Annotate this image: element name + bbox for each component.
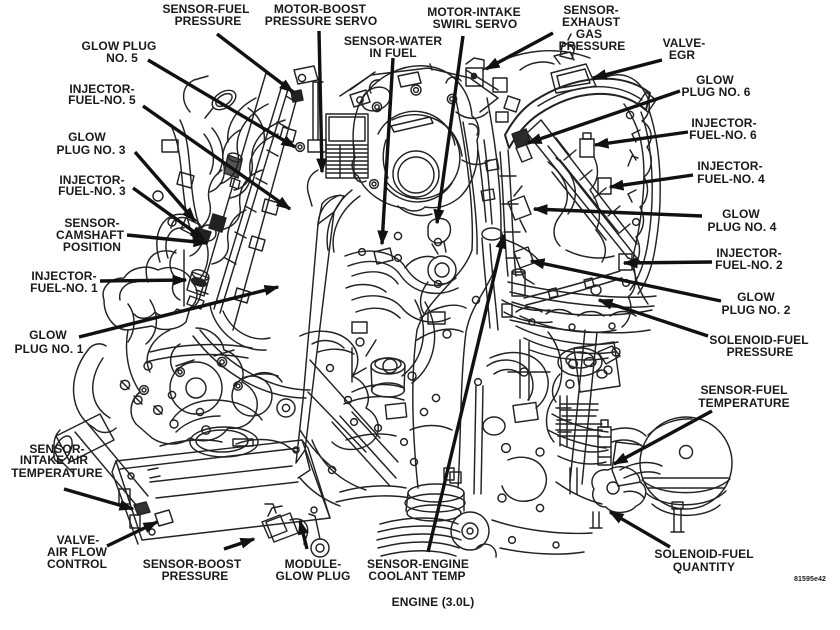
svg-text:PLUG NO. 3: PLUG NO. 3 bbox=[56, 143, 125, 157]
svg-text:FUEL-NO. 6: FUEL-NO. 6 bbox=[689, 128, 757, 142]
svg-text:FUEL-NO. 2: FUEL-NO. 2 bbox=[715, 258, 783, 272]
svg-text:PRESSURE: PRESSURE bbox=[175, 14, 242, 28]
svg-text:CONTROL: CONTROL bbox=[47, 557, 107, 571]
svg-text:COOLANT TEMP: COOLANT TEMP bbox=[368, 569, 465, 583]
svg-text:QUANTITY: QUANTITY bbox=[673, 560, 735, 574]
svg-text:GLOW: GLOW bbox=[722, 207, 760, 221]
svg-text:PRESSURE: PRESSURE bbox=[727, 345, 794, 359]
svg-text:ENGINE (3.0L): ENGINE (3.0L) bbox=[392, 595, 475, 609]
svg-text:FUEL-NO. 3: FUEL-NO. 3 bbox=[58, 184, 126, 198]
svg-text:SENSOR-FUEL: SENSOR-FUEL bbox=[700, 383, 787, 397]
svg-text:PRESSURE SERVO: PRESSURE SERVO bbox=[265, 14, 378, 28]
svg-text:PLUG NO. 2: PLUG NO. 2 bbox=[721, 303, 790, 317]
svg-text:PRESSURE: PRESSURE bbox=[162, 569, 229, 583]
svg-text:GLOW: GLOW bbox=[68, 130, 106, 144]
svg-text:81595e42: 81595e42 bbox=[794, 576, 826, 583]
svg-text:GLOW: GLOW bbox=[29, 328, 67, 342]
svg-text:FUEL-NO. 5: FUEL-NO. 5 bbox=[68, 93, 136, 107]
svg-text:TEMPERATURE: TEMPERATURE bbox=[11, 466, 103, 480]
svg-text:PLUG NO. 4: PLUG NO. 4 bbox=[707, 220, 776, 234]
svg-text:EGR: EGR bbox=[669, 48, 696, 62]
svg-text:INTAKE AIR: INTAKE AIR bbox=[20, 453, 89, 467]
svg-text:GLOW PLUG: GLOW PLUG bbox=[276, 569, 351, 583]
svg-text:FUEL-NO. 1: FUEL-NO. 1 bbox=[30, 281, 98, 295]
svg-text:IN FUEL: IN FUEL bbox=[369, 46, 416, 60]
svg-text:TEMPERATURE: TEMPERATURE bbox=[698, 396, 790, 410]
svg-text:PLUG NO. 1: PLUG NO. 1 bbox=[14, 342, 83, 356]
svg-text:SOLENOID-FUEL: SOLENOID-FUEL bbox=[654, 547, 753, 561]
svg-text:NO. 5: NO. 5 bbox=[106, 51, 138, 65]
svg-text:INJECTOR-: INJECTOR- bbox=[697, 159, 762, 173]
svg-text:FUEL-NO. 4: FUEL-NO. 4 bbox=[697, 172, 765, 186]
svg-text:PRESSURE: PRESSURE bbox=[559, 39, 626, 53]
svg-text:POSITION: POSITION bbox=[63, 240, 121, 254]
svg-text:SWIRL SERVO: SWIRL SERVO bbox=[433, 17, 518, 31]
svg-text:PLUG NO. 6: PLUG NO. 6 bbox=[681, 85, 750, 99]
svg-text:GLOW: GLOW bbox=[737, 290, 775, 304]
